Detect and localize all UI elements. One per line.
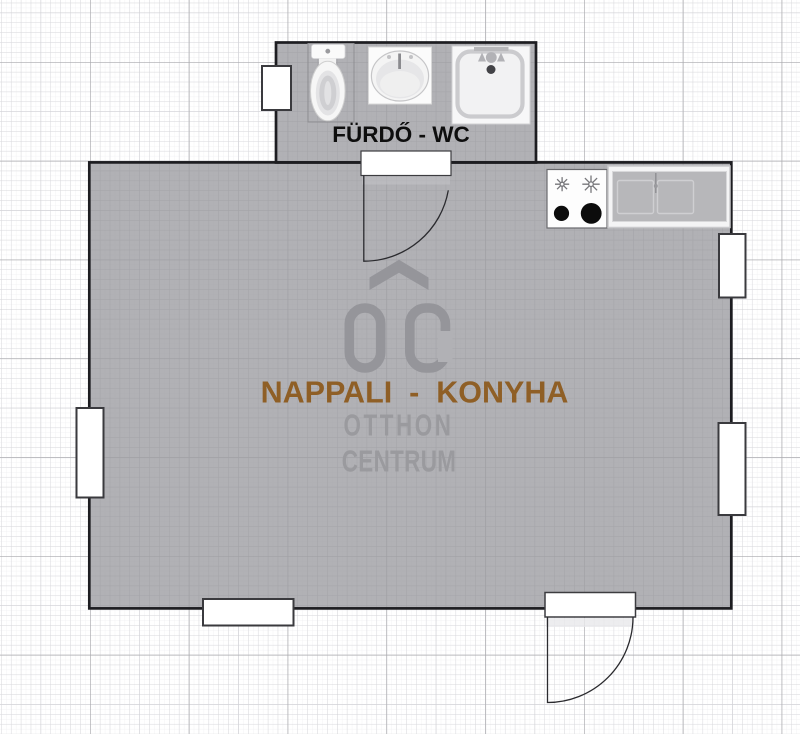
svg-text:CENTRUM: CENTRUM (342, 444, 457, 478)
svg-text:FÜRDŐ - WC: FÜRDŐ - WC (332, 122, 469, 147)
svg-text:NAPPALI - KONYHA: NAPPALI - KONYHA (261, 376, 569, 410)
svg-text:OTTHON: OTTHON (344, 408, 454, 442)
